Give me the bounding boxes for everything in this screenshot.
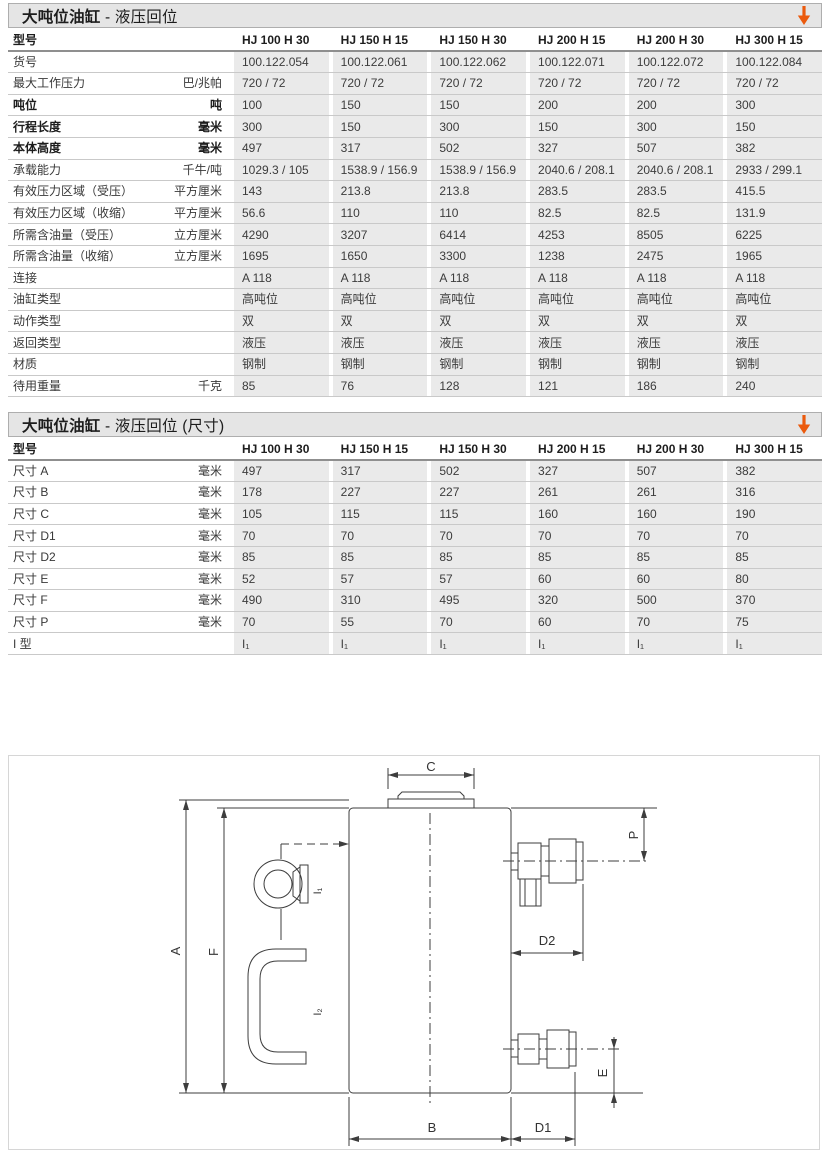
column-header-model: HJ 200 H 15	[530, 439, 625, 459]
value-cell: 钢制	[234, 354, 329, 375]
value-cell: 300	[727, 95, 822, 116]
value-cell: 720 / 72	[431, 73, 526, 94]
value-cell: 110	[431, 203, 526, 224]
saddle-top	[398, 792, 464, 799]
row-label: 所需含油量（收缩）	[13, 250, 121, 262]
value-cell: 液压	[234, 332, 329, 353]
value-cell: 497	[234, 138, 329, 159]
section-down-arrow-icon	[796, 414, 812, 435]
value-cell: 85	[234, 376, 329, 397]
value-cell: 60	[629, 569, 724, 590]
value-cell: 186	[629, 376, 724, 397]
value-cell: 双	[333, 311, 428, 332]
value-cell: I₁	[629, 633, 724, 654]
value-cell: 70	[333, 525, 428, 546]
row-label: 尺寸 E	[13, 573, 48, 585]
value-cell: 70	[727, 525, 822, 546]
value-cell: 382	[727, 461, 822, 482]
value-cell: 52	[234, 569, 329, 590]
row-label-cell: 行程长度毫米	[8, 116, 230, 137]
row-unit: 毫米	[198, 486, 222, 498]
table-row: 最大工作压力巴/兆帕720 / 72720 / 72720 / 72720 / …	[8, 73, 822, 95]
row-label: 尺寸 P	[13, 616, 48, 628]
value-cell: 1538.9 / 156.9	[333, 160, 428, 181]
row-label-cell: 本体高度毫米	[8, 138, 230, 159]
row-label-cell: 尺寸 E毫米	[8, 569, 230, 590]
row-unit: 立方厘米	[174, 250, 222, 262]
row-label: 尺寸 A	[13, 465, 48, 477]
value-cell: 240	[727, 376, 822, 397]
column-header-model: HJ 150 H 30	[431, 30, 526, 50]
value-cell: 300	[431, 116, 526, 137]
value-cell: 3300	[431, 246, 526, 267]
row-unit: 平方厘米	[174, 185, 222, 197]
carry-handle	[248, 949, 306, 1064]
section-down-arrow-icon	[796, 5, 812, 26]
value-cell: 502	[431, 461, 526, 482]
value-cell: 液压	[333, 332, 428, 353]
value-cell: 双	[431, 311, 526, 332]
value-cell: 4290	[234, 224, 329, 245]
column-header-model-label: 型号	[8, 30, 230, 50]
row-label-cell: 返回类型	[8, 332, 230, 353]
row-label-cell: 待用重量千克	[8, 376, 230, 397]
table1-title: 大吨位油缸 - 液压回位	[22, 5, 178, 27]
value-cell: 128	[431, 376, 526, 397]
table-row: 油缸类型高吨位高吨位高吨位高吨位高吨位高吨位	[8, 289, 822, 311]
value-cell: 310	[333, 590, 428, 611]
value-cell: 85	[629, 547, 724, 568]
value-cell: 56.6	[234, 203, 329, 224]
value-cell: 1238	[530, 246, 625, 267]
dimension-table-section: 大吨位油缸 - 液压回位 (尺寸) 型号HJ 100 H 30HJ 150 H …	[8, 412, 822, 655]
value-cell: 2475	[629, 246, 724, 267]
value-cell: 490	[234, 590, 329, 611]
row-label-cell: 有效压力区域（收缩）平方厘米	[8, 203, 230, 224]
row-label: 承载能力	[13, 164, 61, 176]
value-cell: 415.5	[727, 181, 822, 202]
value-cell: 150	[333, 95, 428, 116]
row-label-cell: 连接	[8, 268, 230, 289]
table-row: 尺寸 P毫米705570607075	[8, 612, 822, 634]
value-cell: 82.5	[629, 203, 724, 224]
value-cell: 160	[629, 504, 724, 525]
value-cell: 钢制	[333, 354, 428, 375]
value-cell: 227	[431, 482, 526, 503]
table-row: 尺寸 D2毫米858585858585	[8, 547, 822, 569]
value-cell: A 118	[333, 268, 428, 289]
value-cell: 76	[333, 376, 428, 397]
table1-title-rest: - 液压回位	[101, 9, 178, 26]
value-cell: 液压	[727, 332, 822, 353]
value-cell: 2933 / 299.1	[727, 160, 822, 181]
value-cell: 钢制	[727, 354, 822, 375]
table-row: 尺寸 A毫米497317502327507382	[8, 461, 822, 483]
column-header-model: HJ 300 H 15	[727, 30, 822, 50]
row-unit: 毫米	[198, 121, 222, 133]
column-header-model: HJ 150 H 15	[333, 30, 428, 50]
dim-label-P: P	[626, 831, 641, 840]
row-label-cell: 所需含油量（受压）立方厘米	[8, 224, 230, 245]
value-cell: 283.5	[629, 181, 724, 202]
value-cell: 3207	[333, 224, 428, 245]
value-cell: 100.122.071	[530, 52, 625, 73]
row-label-cell: 承载能力千牛/吨	[8, 160, 230, 181]
row-unit: 毫米	[198, 594, 222, 606]
eyebolt-ring	[254, 860, 302, 908]
value-cell: 227	[333, 482, 428, 503]
value-cell: 100.122.084	[727, 52, 822, 73]
dim-label-D1: D1	[535, 1120, 552, 1135]
value-cell: 1650	[333, 246, 428, 267]
value-cell: 317	[333, 461, 428, 482]
spec-table-section: 大吨位油缸 - 液压回位 型号HJ 100 H 30HJ 150 H 15HJ …	[8, 3, 822, 397]
coupler-valve	[520, 879, 541, 906]
table2-title-bold: 大吨位油缸	[22, 418, 101, 435]
value-cell: 1695	[234, 246, 329, 267]
value-cell: 100.122.061	[333, 52, 428, 73]
value-cell: 1538.9 / 156.9	[431, 160, 526, 181]
value-cell: 82.5	[530, 203, 625, 224]
row-label-cell: 有效压力区域（受压）平方厘米	[8, 181, 230, 202]
row-label: 油缸类型	[13, 293, 61, 305]
table-row: 尺寸 D1毫米707070707070	[8, 525, 822, 547]
value-cell: 钢制	[431, 354, 526, 375]
row-label: 动作类型	[13, 315, 61, 327]
value-cell: 327	[530, 138, 625, 159]
table-row: 承载能力千牛/吨1029.3 / 1051538.9 / 156.91538.9…	[8, 160, 822, 182]
value-cell: 261	[629, 482, 724, 503]
lower-hydraulic-coupler	[503, 1030, 621, 1068]
row-unit: 毫米	[198, 573, 222, 585]
row-unit: 毫米	[198, 142, 222, 154]
column-header-model-label: 型号	[8, 439, 230, 459]
row-label-cell: 尺寸 D1毫米	[8, 525, 230, 546]
table-row: 返回类型液压液压液压液压液压液压	[8, 332, 822, 354]
cylinder-dimension-diagram: C A F I₁ I₂	[8, 755, 820, 1150]
value-cell: 85	[333, 547, 428, 568]
row-unit: 毫米	[198, 465, 222, 477]
table-row: 货号100.122.054100.122.061100.122.062100.1…	[8, 52, 822, 74]
table-row: 材质钢制钢制钢制钢制钢制钢制	[8, 354, 822, 376]
value-cell: 70	[629, 525, 724, 546]
dimension-table: 型号HJ 100 H 30HJ 150 H 15HJ 150 H 30HJ 20…	[8, 439, 822, 655]
value-cell: 液压	[629, 332, 724, 353]
value-cell: 327	[530, 461, 625, 482]
row-label-cell: 油缸类型	[8, 289, 230, 310]
value-cell: 70	[234, 612, 329, 633]
value-cell: 131.9	[727, 203, 822, 224]
value-cell: I₁	[333, 633, 428, 654]
value-cell: 液压	[431, 332, 526, 353]
table-row: 所需含油量（受压）立方厘米429032076414425385056225	[8, 224, 822, 246]
row-label: 尺寸 F	[13, 594, 48, 606]
value-cell: 370	[727, 590, 822, 611]
value-cell: 200	[530, 95, 625, 116]
table-row: 本体高度毫米497317502327507382	[8, 138, 822, 160]
value-cell: A 118	[629, 268, 724, 289]
row-unit: 毫米	[198, 616, 222, 628]
value-cell: 高吨位	[530, 289, 625, 310]
row-label: 货号	[13, 56, 37, 68]
value-cell: 55	[333, 612, 428, 633]
value-cell: 320	[530, 590, 625, 611]
row-label: 待用重量	[13, 380, 61, 392]
saddle-plate	[388, 799, 474, 808]
row-label-cell: 最大工作压力巴/兆帕	[8, 73, 230, 94]
row-unit: 千牛/吨	[183, 164, 222, 176]
value-cell: 70	[530, 525, 625, 546]
value-cell: 液压	[530, 332, 625, 353]
value-cell: 高吨位	[727, 289, 822, 310]
value-cell: 213.8	[333, 181, 428, 202]
column-header-model: HJ 200 H 30	[629, 439, 724, 459]
table-row: 有效压力区域（受压）平方厘米143213.8213.8283.5283.5415…	[8, 181, 822, 203]
row-label-cell: 尺寸 A毫米	[8, 461, 230, 482]
table-row: 所需含油量（收缩）立方厘米169516503300123824751965	[8, 246, 822, 268]
value-cell: 150	[431, 95, 526, 116]
value-cell: 70	[234, 525, 329, 546]
value-cell: 121	[530, 376, 625, 397]
value-cell: 钢制	[530, 354, 625, 375]
value-cell: 507	[629, 138, 724, 159]
row-label: 返回类型	[13, 337, 61, 349]
table-row: 连接A 118A 118A 118A 118A 118A 118	[8, 268, 822, 290]
row-label: 有效压力区域（收缩）	[13, 207, 133, 219]
table-row: I 型I₁I₁I₁I₁I₁I₁	[8, 633, 822, 655]
value-cell: 115	[431, 504, 526, 525]
column-header-model: HJ 300 H 15	[727, 439, 822, 459]
row-unit: 毫米	[198, 551, 222, 563]
row-unit: 千克	[198, 380, 222, 392]
table1-title-bar: 大吨位油缸 - 液压回位	[8, 3, 822, 28]
value-cell: A 118	[530, 268, 625, 289]
value-cell: 317	[333, 138, 428, 159]
value-cell: 497	[234, 461, 329, 482]
value-cell: 200	[629, 95, 724, 116]
row-label: 尺寸 C	[13, 508, 49, 520]
value-cell: 双	[629, 311, 724, 332]
value-cell: 60	[530, 569, 625, 590]
row-label-cell: 材质	[8, 354, 230, 375]
row-label-cell: 尺寸 D2毫米	[8, 547, 230, 568]
value-cell: 80	[727, 569, 822, 590]
table-header-row: 型号HJ 100 H 30HJ 150 H 15HJ 150 H 30HJ 20…	[8, 439, 822, 461]
row-label: 最大工作压力	[13, 77, 85, 89]
value-cell: 2040.6 / 208.1	[629, 160, 724, 181]
value-cell: 150	[530, 116, 625, 137]
value-cell: 143	[234, 181, 329, 202]
row-unit: 毫米	[198, 508, 222, 520]
label-I2: I₂	[312, 1008, 324, 1015]
value-cell: 1029.3 / 105	[234, 160, 329, 181]
eyebolt-stud	[300, 865, 308, 903]
row-label: 所需含油量（受压）	[13, 229, 121, 241]
value-cell: 300	[629, 116, 724, 137]
dim-label-F: F	[206, 948, 221, 956]
table2-title-bar: 大吨位油缸 - 液压回位 (尺寸)	[8, 412, 822, 437]
value-cell: 4253	[530, 224, 625, 245]
value-cell: 720 / 72	[727, 73, 822, 94]
row-label: I 型	[13, 638, 32, 650]
row-label: 尺寸 D1	[13, 530, 56, 542]
value-cell: 6225	[727, 224, 822, 245]
table-row: 尺寸 F毫米490310495320500370	[8, 590, 822, 612]
dim-label-A: A	[168, 946, 183, 955]
table2-title-rest: - 液压回位 (尺寸)	[101, 418, 225, 435]
value-cell: 8505	[629, 224, 724, 245]
value-cell: 150	[333, 116, 428, 137]
value-cell: 382	[727, 138, 822, 159]
value-cell: 双	[234, 311, 329, 332]
row-label: 尺寸 B	[13, 486, 48, 498]
value-cell: 720 / 72	[530, 73, 625, 94]
value-cell: 115	[333, 504, 428, 525]
value-cell: 85	[234, 547, 329, 568]
value-cell: A 118	[234, 268, 329, 289]
row-unit: 立方厘米	[174, 229, 222, 241]
value-cell: 100	[234, 95, 329, 116]
value-cell: 高吨位	[431, 289, 526, 310]
upper-hydraulic-coupler	[503, 839, 650, 906]
value-cell: 85	[530, 547, 625, 568]
value-cell: 495	[431, 590, 526, 611]
value-cell: 283.5	[530, 181, 625, 202]
value-cell: 105	[234, 504, 329, 525]
value-cell: 500	[629, 590, 724, 611]
column-header-model: HJ 150 H 30	[431, 439, 526, 459]
table-row: 行程长度毫米300150300150300150	[8, 116, 822, 138]
column-header-model: HJ 200 H 15	[530, 30, 625, 50]
row-unit: 毫米	[198, 530, 222, 542]
table-row: 吨位吨100150150200200300	[8, 95, 822, 117]
value-cell: I₁	[727, 633, 822, 654]
value-cell: A 118	[431, 268, 526, 289]
row-label: 本体高度	[13, 142, 61, 154]
value-cell: 100.122.062	[431, 52, 526, 73]
row-label-cell: 动作类型	[8, 311, 230, 332]
column-header-model: HJ 100 H 30	[234, 30, 329, 50]
row-label: 行程长度	[13, 121, 61, 133]
value-cell: 高吨位	[234, 289, 329, 310]
table-header-row: 型号HJ 100 H 30HJ 150 H 15HJ 150 H 30HJ 20…	[8, 30, 822, 52]
value-cell: 110	[333, 203, 428, 224]
dim-label-B: B	[428, 1120, 437, 1135]
value-cell: 70	[629, 612, 724, 633]
value-cell: 85	[431, 547, 526, 568]
value-cell: I₁	[234, 633, 329, 654]
value-cell: 300	[234, 116, 329, 137]
row-label-cell: I 型	[8, 633, 230, 654]
table-row: 尺寸 E毫米525757606080	[8, 569, 822, 591]
value-cell: 100.122.054	[234, 52, 329, 73]
value-cell: 6414	[431, 224, 526, 245]
row-unit: 吨	[210, 99, 222, 111]
column-header-model: HJ 200 H 30	[629, 30, 724, 50]
row-label-cell: 所需含油量（收缩）立方厘米	[8, 246, 230, 267]
value-cell: 100.122.072	[629, 52, 724, 73]
row-label-cell: 尺寸 P毫米	[8, 612, 230, 633]
value-cell: 720 / 72	[333, 73, 428, 94]
value-cell: 1965	[727, 246, 822, 267]
value-cell: 160	[530, 504, 625, 525]
datasheet-page: 大吨位油缸 - 液压回位 型号HJ 100 H 30HJ 150 H 15HJ …	[0, 0, 830, 1159]
value-cell: 2040.6 / 208.1	[530, 160, 625, 181]
label-I1: I₁	[312, 887, 324, 894]
value-cell: 57	[333, 569, 428, 590]
row-unit: 巴/兆帕	[183, 77, 222, 89]
value-cell: 720 / 72	[234, 73, 329, 94]
value-cell: 213.8	[431, 181, 526, 202]
value-cell: 316	[727, 482, 822, 503]
technical-drawing: C A F I₁ I₂	[9, 756, 819, 1149]
value-cell: 502	[431, 138, 526, 159]
row-label: 有效压力区域（受压）	[13, 185, 133, 197]
value-cell: 双	[727, 311, 822, 332]
table1-title-bold: 大吨位油缸	[22, 9, 101, 26]
value-cell: 钢制	[629, 354, 724, 375]
row-label-cell: 货号	[8, 52, 230, 73]
value-cell: A 118	[727, 268, 822, 289]
value-cell: 60	[530, 612, 625, 633]
row-label-cell: 尺寸 B毫米	[8, 482, 230, 503]
spec-table: 型号HJ 100 H 30HJ 150 H 15HJ 150 H 30HJ 20…	[8, 30, 822, 397]
value-cell: 70	[431, 525, 526, 546]
dim-label-C: C	[426, 759, 435, 774]
value-cell: 720 / 72	[629, 73, 724, 94]
table-row: 待用重量千克8576128121186240	[8, 376, 822, 398]
row-label: 尺寸 D2	[13, 551, 56, 563]
table-row: 尺寸 C毫米105115115160160190	[8, 504, 822, 526]
value-cell: 75	[727, 612, 822, 633]
value-cell: I₁	[431, 633, 526, 654]
value-cell: 高吨位	[629, 289, 724, 310]
table2-title: 大吨位油缸 - 液压回位 (尺寸)	[22, 414, 224, 436]
value-cell: 57	[431, 569, 526, 590]
row-label-cell: 吨位吨	[8, 95, 230, 116]
row-unit: 平方厘米	[174, 207, 222, 219]
column-header-model: HJ 100 H 30	[234, 439, 329, 459]
value-cell: 507	[629, 461, 724, 482]
table-row: 动作类型双双双双双双	[8, 311, 822, 333]
dim-label-E: E	[595, 1068, 610, 1077]
table-row: 尺寸 B毫米178227227261261316	[8, 482, 822, 504]
value-cell: 190	[727, 504, 822, 525]
table-row: 有效压力区域（收缩）平方厘米56.611011082.582.5131.9	[8, 203, 822, 225]
row-label: 吨位	[13, 99, 37, 111]
value-cell: 70	[431, 612, 526, 633]
value-cell: I₁	[530, 633, 625, 654]
row-label: 材质	[13, 358, 37, 370]
value-cell: 261	[530, 482, 625, 503]
value-cell: 双	[530, 311, 625, 332]
row-label: 连接	[13, 272, 37, 284]
value-cell: 85	[727, 547, 822, 568]
row-label-cell: 尺寸 F毫米	[8, 590, 230, 611]
eyebolt-ring-inner	[264, 870, 292, 898]
column-header-model: HJ 150 H 15	[333, 439, 428, 459]
value-cell: 150	[727, 116, 822, 137]
value-cell: 178	[234, 482, 329, 503]
row-label-cell: 尺寸 C毫米	[8, 504, 230, 525]
value-cell: 高吨位	[333, 289, 428, 310]
dim-label-D2: D2	[539, 933, 556, 948]
